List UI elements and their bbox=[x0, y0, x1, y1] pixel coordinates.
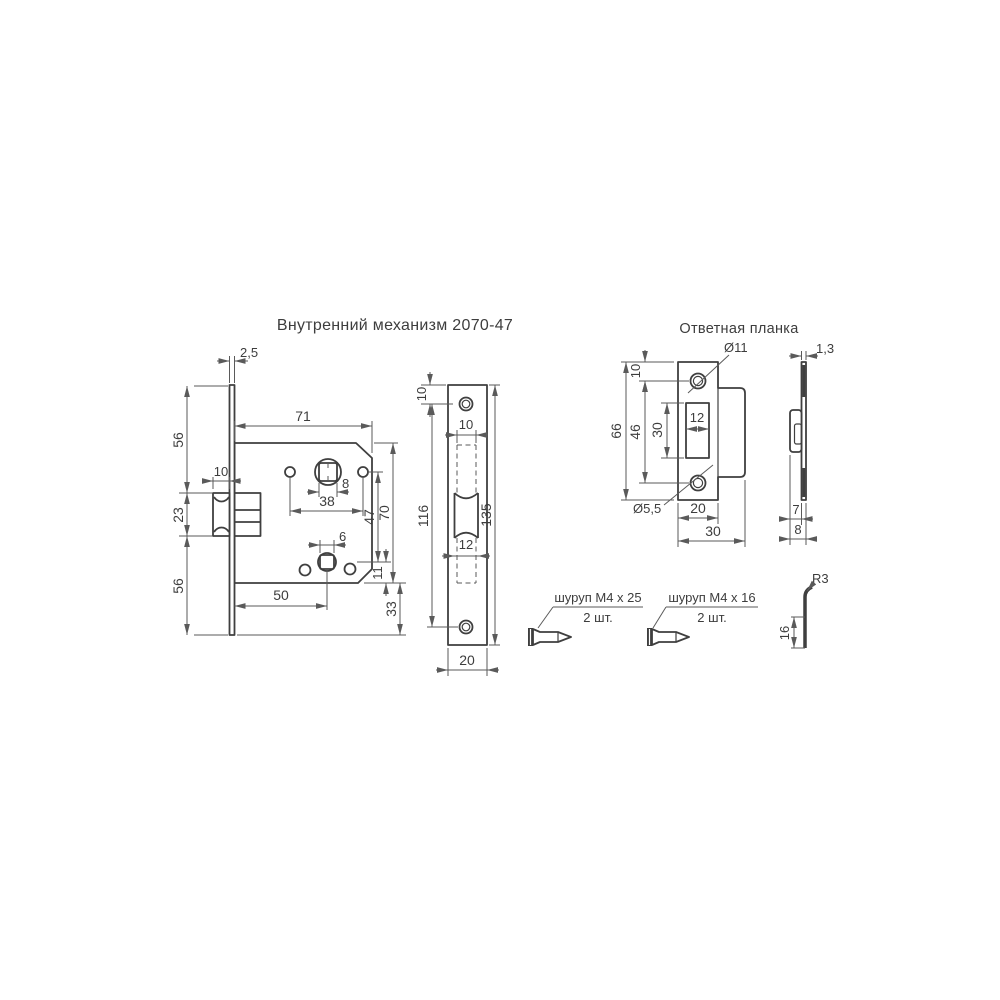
dim-key-to-bottom: 11 bbox=[370, 566, 385, 580]
screw-m4x16-shaft bbox=[652, 629, 689, 645]
dim-faceplate-height: 135 bbox=[478, 503, 494, 527]
dim-faceplate-latch-width: 12 bbox=[459, 537, 473, 552]
screw-m4x25-qty: 2 шт. bbox=[583, 610, 612, 625]
dim-spindle-square: 8 bbox=[342, 476, 349, 491]
dim-faceplate-top-to-hole: 10 bbox=[414, 387, 429, 401]
screw-m4x25-label: шуруп M4 x 25 bbox=[554, 590, 641, 605]
lower-hole-left bbox=[300, 565, 311, 576]
faceplate-screw-hole-bottom bbox=[460, 621, 473, 634]
strike-plate-front-view: Ø11 Ø5,5 10 46 30 66 12 20 bbox=[608, 340, 748, 547]
dim-latch-protrusion: 10 bbox=[214, 464, 228, 479]
dim-key-square: 6 bbox=[339, 529, 346, 544]
screw-m4x16: шуруп M4 x 16 2 шт. bbox=[647, 590, 758, 646]
technical-drawing-page: Внутренний механизм 2070-47 Ответная пла… bbox=[0, 0, 1000, 1000]
faceplate-screw-hole-top bbox=[460, 398, 473, 411]
screw-m4x16-label: шуруп M4 x 16 bbox=[668, 590, 755, 605]
latch-tail-block bbox=[235, 493, 261, 536]
dim-strike-total-width: 30 bbox=[705, 523, 721, 539]
dim-strike-cutout-height: 30 bbox=[649, 422, 665, 438]
dim-strike-thickness: 1,3 bbox=[816, 341, 834, 356]
dim-tab-length: 16 bbox=[777, 626, 792, 640]
dim-spindle-to-key: 47 bbox=[361, 509, 377, 525]
dim-faceplate-cutout-width: 10 bbox=[459, 417, 473, 432]
dim-body-height: 70 bbox=[376, 505, 392, 521]
dim-bottom-offset: 56 bbox=[170, 578, 186, 594]
dim-strike-top-to-hole: 10 bbox=[628, 364, 643, 378]
dim-strike-hole-diameter: Ø11 bbox=[724, 340, 748, 355]
lower-hole-right bbox=[345, 564, 356, 575]
strike-plate-side-view: 1,3 7 8 bbox=[779, 341, 834, 545]
strike-plate-title: Ответная планка bbox=[679, 321, 799, 337]
mechanism-title: Внутренний механизм 2070-47 bbox=[277, 317, 513, 334]
strike-side-tab bbox=[790, 410, 802, 452]
dim-top-offset: 56 bbox=[170, 432, 186, 448]
dim-faceplate-thickness: 2,5 bbox=[240, 345, 258, 360]
mechanism-side-view: 2,5 56 23 56 10 71 8 38 bbox=[170, 345, 406, 635]
dim-backset: 50 bbox=[273, 587, 289, 603]
lock-technical-drawing: Внутренний механизм 2070-47 Ответная пла… bbox=[0, 0, 1000, 1000]
dim-strike-tab-depth: 7 bbox=[792, 502, 799, 517]
dim-faceplate-width: 20 bbox=[459, 652, 475, 668]
screw-m4x25-shaft bbox=[533, 629, 571, 645]
dim-strike-countersink-diameter: Ø5,5 bbox=[633, 501, 661, 516]
dim-body-width: 71 bbox=[295, 408, 311, 424]
fixing-hole-left bbox=[285, 467, 295, 477]
dim-strike-plate-width: 20 bbox=[690, 500, 706, 516]
screw-m4x25: шуруп M4 x 25 2 шт. bbox=[528, 590, 643, 646]
strike-screw-hole-top bbox=[691, 374, 706, 389]
dim-strike-cutout-width: 12 bbox=[690, 410, 704, 425]
dim-tab-bend-radius: R3 bbox=[812, 571, 829, 586]
tab-bend-profile bbox=[805, 587, 812, 648]
dim-strike-holes-span: 46 bbox=[627, 424, 643, 440]
dim-latch-height: 23 bbox=[170, 507, 186, 523]
dim-strike-total-depth: 8 bbox=[794, 522, 801, 537]
dim-faceplate-holes-span: 116 bbox=[415, 505, 431, 528]
dim-bottom-extension: 33 bbox=[383, 601, 399, 617]
dim-strike-height: 66 bbox=[608, 423, 624, 439]
faceplate-front-view: 10 10 12 116 135 20 bbox=[414, 372, 500, 676]
strike-tab-detail: R3 16 bbox=[777, 571, 829, 648]
screw-m4x16-qty: 2 шт. bbox=[697, 610, 726, 625]
fixing-hole-right bbox=[358, 467, 368, 477]
dim-fixing-holes-span: 38 bbox=[319, 493, 335, 509]
